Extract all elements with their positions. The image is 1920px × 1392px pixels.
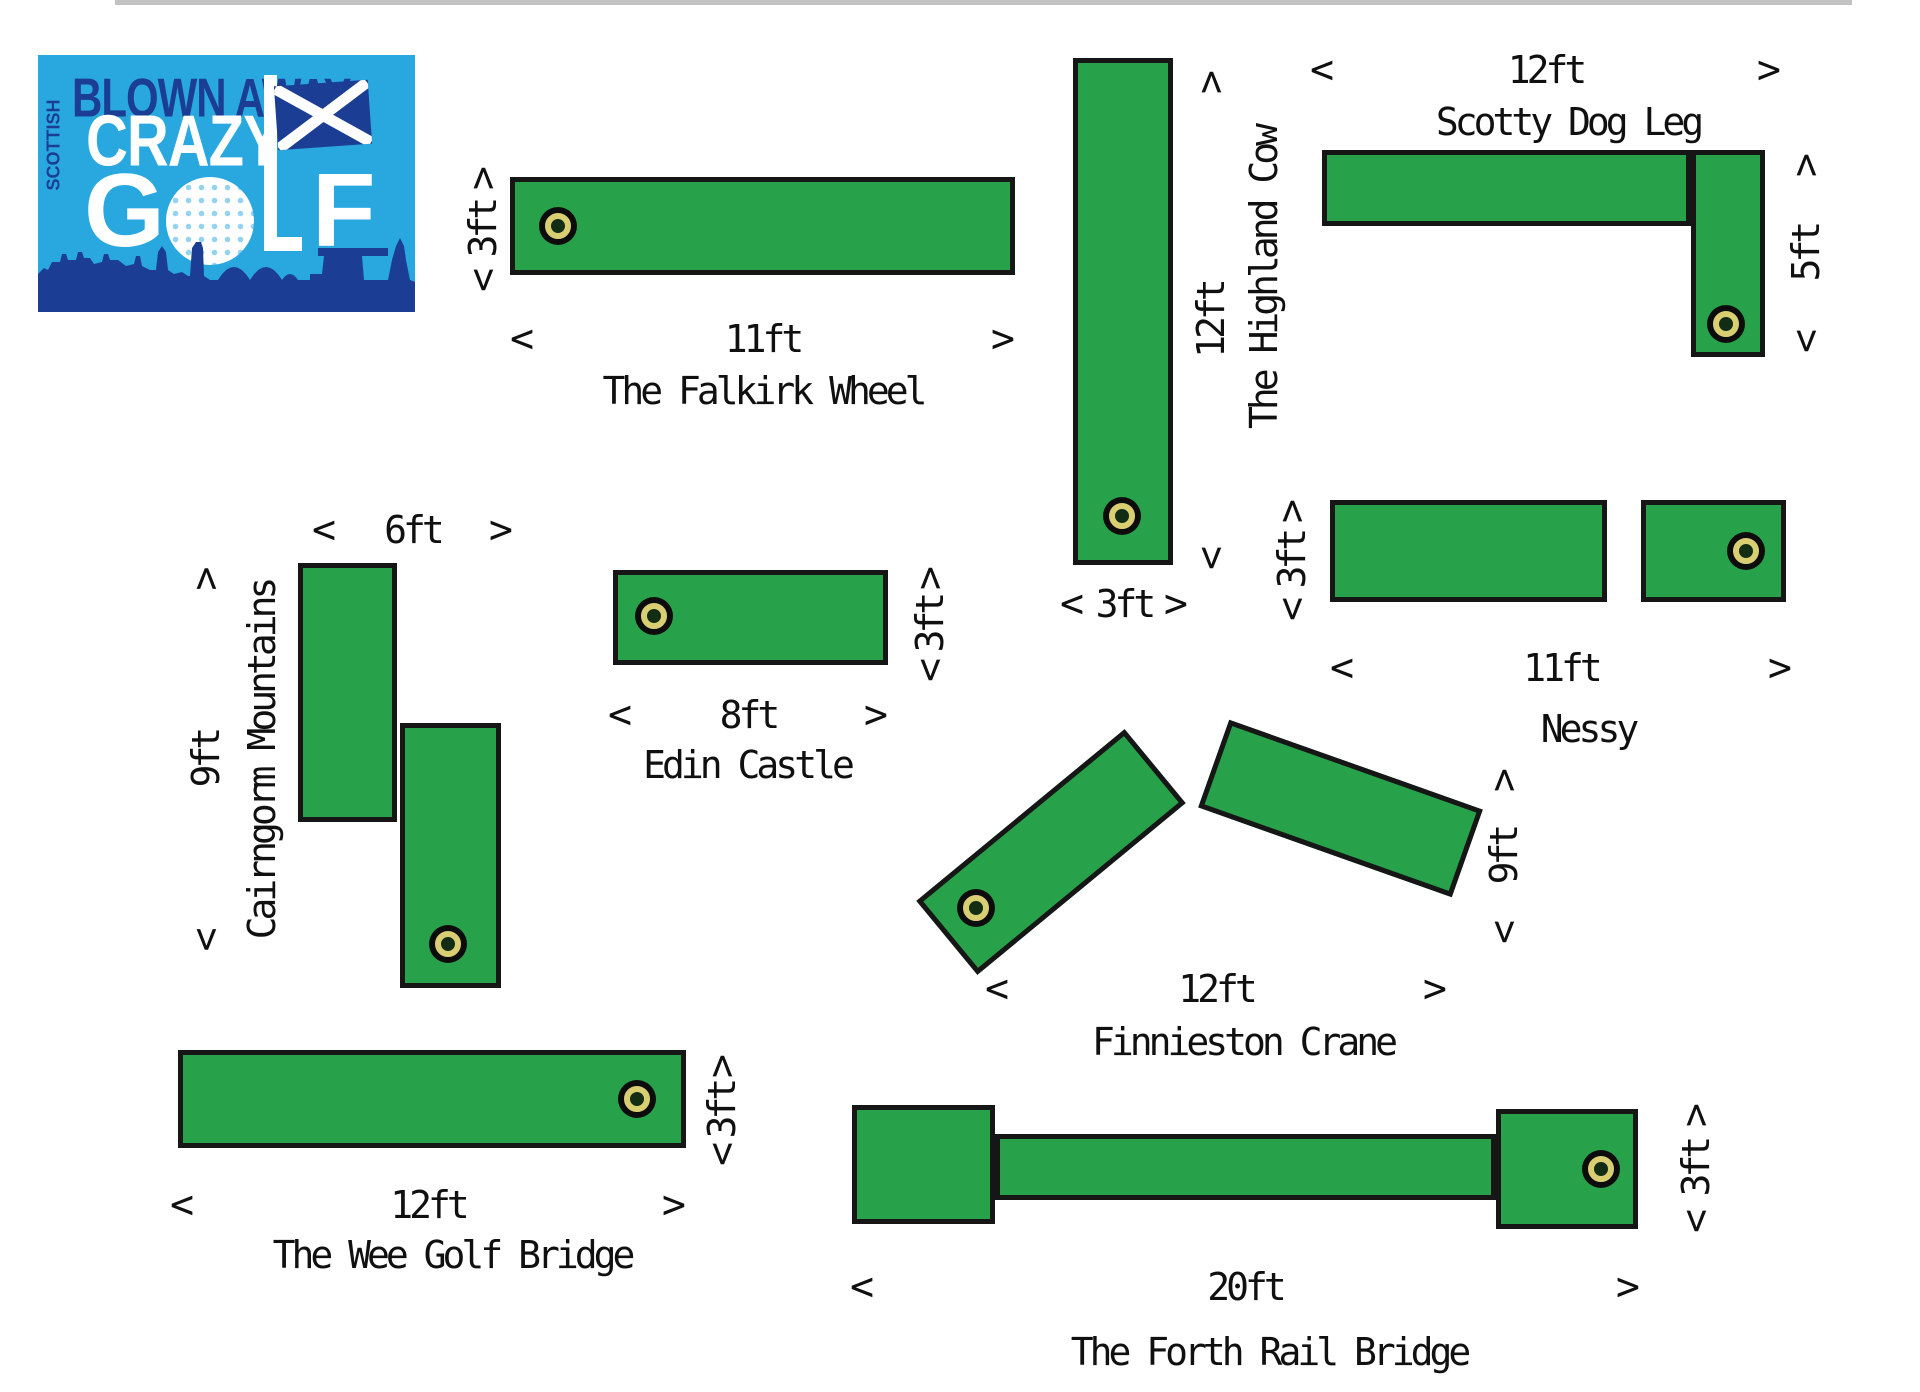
chevron-left-icon: < xyxy=(183,927,229,951)
blown-away-crazy-golf-logo: BLOWN AWAY SCOTTISH CRAZY G F xyxy=(38,55,415,312)
length-dimension: 6ft xyxy=(384,508,441,552)
chevron-left-icon: < xyxy=(1330,645,1354,691)
cup-ring xyxy=(1713,311,1739,337)
width-dimension: 3ft xyxy=(1270,532,1314,589)
chevron-right-icon: > xyxy=(1616,1264,1640,1310)
chevron-right-icon: > xyxy=(1164,581,1188,627)
green-felt xyxy=(1073,58,1173,565)
hole-name: The Falkirk Wheel xyxy=(603,369,924,413)
chevron-left-icon: < xyxy=(460,268,506,292)
length-dimension: 20ft xyxy=(1207,1265,1283,1309)
cup-ring xyxy=(1733,538,1759,564)
hole-name: The Highland Cow xyxy=(1242,127,1286,429)
width-dimension: 3ft xyxy=(1674,1140,1718,1197)
chevron-left-icon: < xyxy=(1188,546,1234,570)
green-felt xyxy=(916,729,1185,975)
length-dimension: 12ft xyxy=(1178,967,1254,1011)
chevron-left-icon: < xyxy=(699,1142,745,1166)
hole-name: Edin Castle xyxy=(643,743,851,787)
width-dimension: 3ft xyxy=(908,596,952,653)
length-dimension: 8ft xyxy=(720,693,777,737)
width-dimension: 3ft xyxy=(700,1082,744,1139)
cup-ring xyxy=(641,603,667,629)
chevron-left-icon: < xyxy=(907,658,953,682)
length-dimension: 12ft xyxy=(390,1183,466,1227)
cup-ring xyxy=(435,931,461,957)
hole-cup-icon xyxy=(1582,1150,1620,1188)
chevron-right-icon: > xyxy=(460,166,506,190)
chevron-right-icon: > xyxy=(1757,47,1781,93)
chevron-right-icon: > xyxy=(1481,768,1527,792)
chevron-left-icon: < xyxy=(608,692,632,738)
green-felt xyxy=(510,177,1015,275)
green-felt xyxy=(995,1134,1496,1200)
chevron-right-icon: > xyxy=(907,566,953,590)
chevron-right-icon: > xyxy=(699,1054,745,1078)
width-dimension: 9ft xyxy=(1482,828,1526,885)
chevron-left-icon: < xyxy=(1060,581,1084,627)
width-dimension: 5ft xyxy=(1784,225,1828,282)
cup-ring xyxy=(624,1086,650,1112)
chevron-right-icon: > xyxy=(1768,645,1792,691)
hole-name: The Forth Rail Bridge xyxy=(1071,1330,1467,1374)
cup-ring xyxy=(545,213,571,239)
chevron-left-icon: < xyxy=(850,1264,874,1310)
chevron-left-icon: < xyxy=(1783,329,1829,353)
chevron-left-icon: < xyxy=(1673,1209,1719,1233)
hole-name: Cairngorm Mountains xyxy=(240,581,284,940)
scottish-skyline-icon xyxy=(38,224,415,312)
chevron-right-icon: > xyxy=(1673,1103,1719,1127)
cup-ring xyxy=(1109,503,1135,529)
width-dimension: 3ft xyxy=(461,201,505,258)
chevron-right-icon: > xyxy=(489,507,513,553)
logo-brand-side: SCOTTISH xyxy=(44,99,65,190)
length-dimension: 11ft xyxy=(1523,646,1599,690)
course-plan-canvas: BLOWN AWAY SCOTTISH CRAZY G F < 3ft > < … xyxy=(0,0,1920,1392)
chevron-left-icon: < xyxy=(510,316,534,362)
chevron-left-icon: < xyxy=(1310,47,1334,93)
length-dimension: 12ft xyxy=(1508,48,1584,92)
green-felt xyxy=(852,1105,995,1224)
chevron-right-icon: > xyxy=(183,567,229,591)
hole-cup-icon xyxy=(539,207,577,245)
chevron-left-icon: < xyxy=(170,1182,194,1228)
top-rule-line xyxy=(115,0,1852,5)
hole-cup-icon xyxy=(957,889,995,927)
hole-cup-icon xyxy=(1103,497,1141,535)
hole-cup-icon xyxy=(1707,305,1745,343)
hole-name: Scotty Dog Leg xyxy=(1436,100,1700,144)
chevron-right-icon: > xyxy=(1423,966,1447,1012)
cup-ring xyxy=(963,895,989,921)
length-dimension: 11ft xyxy=(725,317,801,361)
chevron-left-icon: < xyxy=(1269,597,1315,621)
hole-name: Nessy xyxy=(1541,707,1635,751)
chevron-right-icon: > xyxy=(1188,70,1234,94)
chevron-left-icon: < xyxy=(312,507,336,553)
chevron-right-icon: > xyxy=(991,316,1015,362)
chevron-left-icon: < xyxy=(1481,920,1527,944)
length-dimension: 12ft xyxy=(1189,282,1233,358)
chevron-right-icon: > xyxy=(864,692,888,738)
hole-cup-icon xyxy=(635,597,673,635)
green-felt xyxy=(1330,500,1607,602)
hole-cup-icon xyxy=(1727,532,1765,570)
hole-name: The Wee Golf Bridge xyxy=(273,1233,632,1277)
green-felt xyxy=(1198,720,1483,897)
hole-cup-icon xyxy=(618,1080,656,1118)
chevron-right-icon: > xyxy=(662,1182,686,1228)
chevron-right-icon: > xyxy=(1783,153,1829,177)
chevron-left-icon: < xyxy=(985,966,1009,1012)
cup-ring xyxy=(1588,1156,1614,1182)
green-felt xyxy=(178,1050,686,1148)
hole-cup-icon xyxy=(429,925,467,963)
green-felt xyxy=(298,563,397,822)
green-felt xyxy=(1322,150,1691,226)
width-dimension: 9ft xyxy=(184,731,228,788)
hole-name: Finnieston Crane xyxy=(1092,1020,1394,1064)
scotland-flag-icon xyxy=(274,80,372,150)
chevron-right-icon: > xyxy=(1269,499,1315,523)
width-dimension: 3ft xyxy=(1096,582,1153,626)
